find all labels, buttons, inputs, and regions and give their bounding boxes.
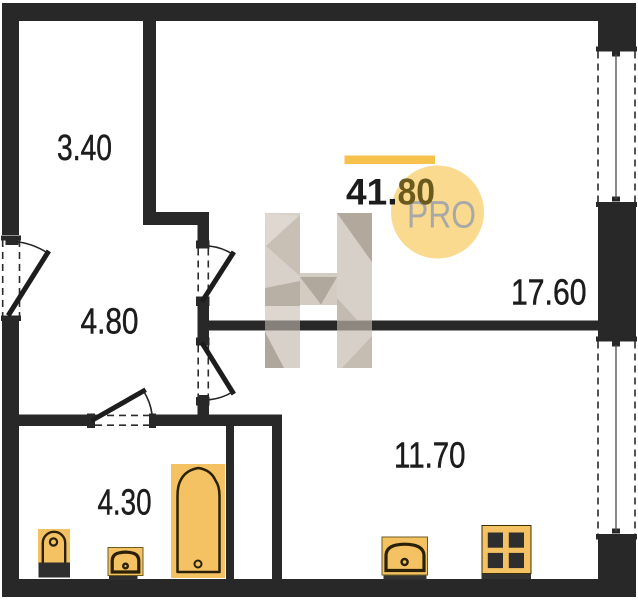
svg-text:4.80: 4.80 [81,301,139,342]
svg-text:17.60: 17.60 [511,272,587,313]
svg-text:4.30: 4.30 [98,482,152,523]
svg-text:11.70: 11.70 [394,435,466,476]
svg-text:41.: 41. [346,172,398,213]
svg-text:80: 80 [398,172,436,213]
svg-text:3.40: 3.40 [57,127,112,168]
